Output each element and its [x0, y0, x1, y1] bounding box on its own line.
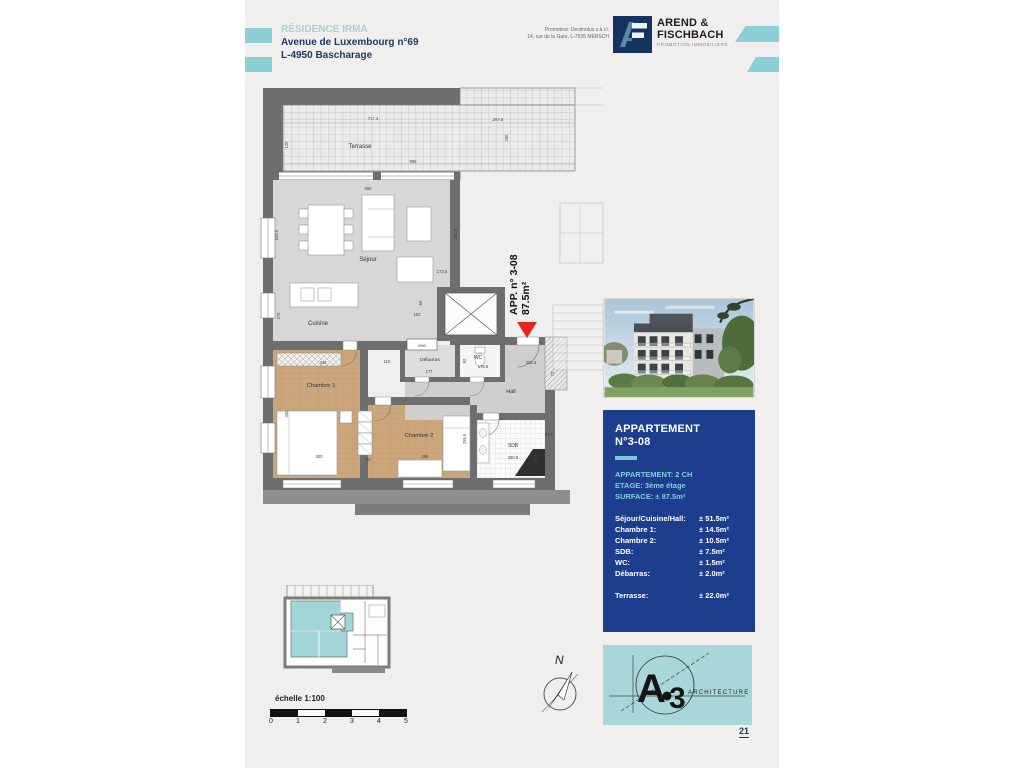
dimension-label: 206.5: [526, 360, 537, 365]
promoter-line-1: Promoteur: Devimolux s.à r.l.: [483, 27, 609, 34]
room-label: Cuisine: [308, 321, 329, 327]
arend-fischbach-logo-icon: [613, 16, 652, 53]
dimension-label: 548.5: [274, 229, 279, 240]
room-label: Hall: [506, 389, 515, 395]
dimension-label: 173.5: [437, 269, 448, 274]
unit-surface: 87.5m²: [520, 281, 532, 315]
teal-accent-shape: [747, 57, 779, 72]
north-label: N: [555, 653, 564, 667]
dimension-label: 120: [284, 141, 289, 149]
room-label: Terrasse: [348, 144, 372, 150]
dimension-label: 680: [365, 186, 373, 191]
dimension-label: 103: [414, 312, 422, 317]
panel-title-line-2: N°3-08: [615, 436, 743, 449]
room-label: Chambre 1: [307, 383, 336, 389]
room-label: SDB: [508, 443, 519, 449]
address-line-2: L-4950 Bascharage: [281, 49, 419, 62]
room-area-list: Séjour/Cuisine/Hall:± 51.5m² Chambre 1:±…: [615, 513, 743, 601]
panel-title-line-1: APPARTEMENT: [615, 423, 743, 436]
promoter-line-2: 14, rue de la Gare, L-7535 MERSCH: [483, 34, 609, 41]
scale-label: échelle 1:100: [275, 694, 325, 703]
dimension-label: 450: [284, 410, 289, 418]
room-label: WC: [474, 355, 483, 361]
room-area-row: WC:± 1.5m²: [615, 557, 743, 568]
dimension-label: 250.5: [533, 452, 538, 463]
panel-meta-floor: ETAGE: 3ème étage: [615, 480, 743, 491]
key-plan: [283, 585, 395, 675]
dimension-label: 60: [418, 300, 423, 305]
panel-meta-surface: SURFACE: ± 87.5m²: [615, 491, 743, 502]
teal-accent-bar: [245, 28, 272, 43]
dimension-label: 81.5: [545, 432, 554, 437]
dimension-label: 177: [426, 369, 434, 374]
dimension-label: 176.5: [478, 364, 489, 369]
north-compass-icon: N: [538, 650, 582, 724]
a3-wordmark: ARCHITECTURE: [688, 690, 749, 696]
dimension-label: 260.5: [508, 455, 519, 460]
room-label: VMC: [418, 344, 427, 348]
project-address-block: RÉSIDENCE IRMA Avenue de Luxembourg n°69…: [281, 23, 419, 62]
plan-sheet-page: RÉSIDENCE IRMA Avenue de Luxembourg n°69…: [245, 0, 779, 768]
floor-plan: APP. n° 3-08 87.5m² Terrasse Séjour Cuis…: [255, 83, 605, 568]
scale-bar: [270, 709, 407, 717]
dimension-label: 300: [316, 454, 324, 459]
address-line-1: Avenue de Luxembourg n°69: [281, 36, 419, 49]
unit-number: APP. n° 3-08: [508, 254, 520, 315]
room-area-row: Chambre 2:± 10.5m²: [615, 535, 743, 546]
dimension-label: 110: [384, 359, 391, 364]
room-area-row: SDB:± 7.5m²: [615, 546, 743, 557]
dimension-label: 267.5: [493, 117, 504, 122]
dimension-label: 255.5: [462, 433, 467, 444]
panel-meta-type: APPARTEMENT: 2 CH: [615, 469, 743, 480]
room-area-row: Débarras:± 2.0m²: [615, 568, 743, 579]
dimension-label: 342: [320, 360, 328, 365]
dimension-label: 270: [276, 312, 281, 320]
arend-fischbach-tagline: PROMOTION IMMOBILIÈRE: [657, 42, 728, 47]
promoter-block: Promoteur: Devimolux s.à r.l. 14, rue de…: [483, 27, 609, 41]
dimension-label: 73: [550, 371, 555, 376]
terrace-area-row: Terrasse:± 22.0m²: [615, 590, 743, 601]
dimension-label: 717.4: [368, 116, 379, 121]
room-area-row: Séjour/Cuisine/Hall:± 51.5m²: [615, 513, 743, 524]
dimension-label: 250: [504, 134, 509, 142]
unit-label: APP. n° 3-08 87.5m²: [508, 254, 532, 315]
teal-accent-bar: [245, 57, 272, 72]
arend-fischbach-name: AREND & FISCHBACH: [657, 17, 724, 41]
dimension-label: 985: [410, 159, 418, 164]
room-label: Débarras: [420, 357, 440, 363]
teal-accent-shape: [735, 26, 779, 42]
scale-ticks: 0 1 2 3 4 5: [270, 718, 406, 728]
a3-architecture-logo: A 3 ARCHITECTURE: [603, 645, 752, 725]
dimension-label: 92: [366, 457, 371, 462]
a3-mark-3: 3: [669, 682, 686, 715]
screenshot-canvas: RÉSIDENCE IRMA Avenue de Luxembourg n°69…: [0, 0, 1024, 768]
dimension-label: 352.5: [453, 228, 458, 239]
residence-name: RÉSIDENCE IRMA: [281, 23, 419, 36]
dimension-label: 92: [462, 358, 467, 363]
dimension-label: 369: [422, 454, 430, 459]
a3-mark-a: A: [637, 667, 666, 711]
room-label: Chambre 2: [405, 433, 434, 439]
room-label: Séjour: [359, 257, 376, 263]
unit-arrow-icon: [517, 322, 537, 338]
page-number: 21: [739, 726, 749, 738]
apartment-info-panel: APPARTEMENT N°3-08 APPARTEMENT: 2 CH ETA…: [603, 410, 755, 632]
building-photo: [603, 298, 755, 398]
room-area-row: Chambre 1:± 14.5m²: [615, 524, 743, 535]
panel-accent-bar: [615, 456, 637, 460]
